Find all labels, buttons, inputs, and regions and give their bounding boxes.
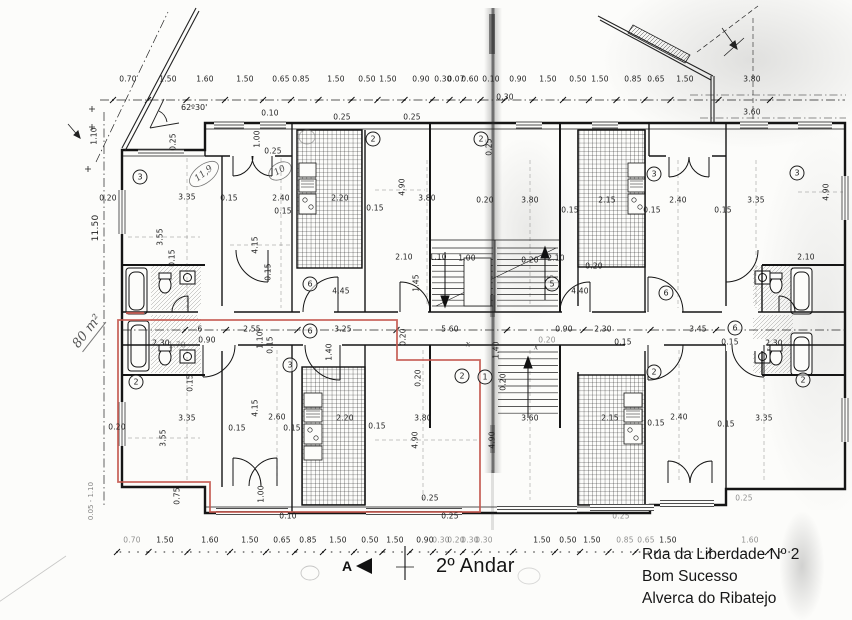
dimension-label: 0.15	[647, 419, 665, 428]
dimension-label: 0.10	[279, 512, 297, 521]
angle-annotation: 62º30'	[181, 103, 207, 112]
circled-room-number: 5	[545, 277, 560, 292]
dimension-label: 0.85	[292, 75, 310, 84]
dimension-label: 0.85	[624, 75, 642, 84]
dimension-label: 3.35	[178, 414, 196, 423]
floor-title: 2º Andar	[436, 555, 515, 578]
circled-room-number: 2	[796, 373, 811, 388]
dimension-label: 4.90	[822, 183, 831, 201]
dimension-label: 0.15	[714, 206, 732, 215]
dimension-label: 2.20	[336, 414, 354, 423]
dimension-label: 1.00	[458, 254, 476, 263]
dimension-label: 0.90	[416, 536, 434, 545]
dimension-label: 0.20	[521, 256, 539, 265]
dimension-label: 0.90	[555, 325, 573, 334]
dimension-label: 0.30	[496, 93, 514, 102]
dimension-label: 0.15	[561, 206, 579, 215]
dimension-label: 0.25	[612, 512, 630, 521]
dimension-label: 0.85	[299, 536, 317, 545]
dimension-label: 0.20	[399, 328, 408, 346]
dimension-label: 1.40	[492, 341, 501, 359]
dimension-label: 0.30	[475, 536, 493, 545]
dimension-label: 2.15	[601, 414, 619, 423]
dimension-label: 0.20	[99, 194, 117, 203]
dimension-label: 4.90	[411, 431, 420, 449]
circled-room-number: 6	[303, 324, 318, 339]
dimension-label: 3.80	[418, 194, 436, 203]
circled-room-number: 3	[283, 358, 298, 373]
dimension-label: 3.80	[414, 414, 432, 423]
circled-room-number: 6	[659, 286, 674, 301]
circled-room-number: 3	[133, 170, 148, 185]
dimension-label: 1.40	[325, 343, 334, 361]
dimension-label: 1.10	[90, 127, 99, 145]
dimension-label: 2.40	[670, 413, 688, 422]
dimension-label: 0.90	[509, 75, 527, 84]
dimension-label: 2.30	[594, 325, 612, 334]
dimension-label: 0.15	[220, 194, 238, 203]
circled-room-number: 2	[647, 365, 662, 380]
dimension-label: 1.50	[583, 536, 601, 545]
dimension-label: 0.20	[538, 336, 556, 345]
dimension-label: 0.15	[717, 420, 735, 429]
dimension-label: 0.15	[264, 263, 273, 281]
dimension-label: 0.15	[266, 336, 275, 354]
dimension-label: 4.45	[332, 287, 350, 296]
dimension-label: 3.35	[178, 193, 196, 202]
dimension-label: 0.50	[559, 536, 577, 545]
dimension-label: 6	[198, 325, 203, 334]
dimension-label: 3.35	[747, 196, 765, 205]
dimension-label: 3.55	[159, 429, 168, 447]
dimension-label: 0.50	[361, 536, 379, 545]
dimension-label: 1.60	[196, 75, 214, 84]
circled-room-number: 2	[129, 375, 144, 390]
handwritten-note: 10	[273, 164, 288, 178]
dimension-label: 0.50	[569, 75, 587, 84]
dimension-label: 0.10	[261, 109, 279, 118]
dimension-label: 2.40	[669, 196, 687, 205]
dimension-label: 1.70	[168, 341, 186, 350]
dimension-label: 1.10	[256, 331, 265, 349]
dimension-label: 1.00	[257, 485, 266, 503]
dimension-label: 1.45	[412, 274, 421, 292]
dimension-label: 0.15	[283, 424, 301, 433]
dimension-label: 0.20	[585, 262, 603, 271]
dimension-label: 0.90	[412, 75, 430, 84]
dimension-label: 1.50	[539, 75, 557, 84]
dimension-label: 3.25	[334, 325, 352, 334]
dimension-label: 3.45	[689, 325, 707, 334]
dimension-label: 3.55	[156, 228, 165, 246]
dimension-label: 5 60	[441, 325, 459, 334]
dimension-label: 0.25	[735, 494, 753, 503]
dimension-label: 0.20	[108, 423, 126, 432]
dimension-label: 2.40	[272, 194, 290, 203]
dimension-label: 1.50	[533, 536, 551, 545]
dimension-label: 3.60	[743, 108, 761, 117]
total-height-dimension: 11.50	[91, 215, 101, 242]
dimension-label: 4.15	[251, 236, 260, 254]
left-edge-dimension: 0.05 - 1.10	[87, 482, 95, 520]
dimension-label: 2.30	[765, 339, 783, 348]
dimension-label: 0.90	[198, 336, 216, 345]
dimension-label: 1.00	[253, 130, 262, 148]
dimension-label: 1.50	[329, 536, 347, 545]
address-line-3: Alverca do Ribatejo	[642, 588, 799, 610]
circled-room-number: 2	[366, 132, 381, 147]
dimension-label: 0.10	[482, 75, 500, 84]
dimension-labels-layer: 0.701.501.601.500.650.851.500.501.500.90…	[0, 0, 852, 620]
circled-room-number: 6	[303, 277, 318, 292]
dimension-label: 2.10	[547, 254, 565, 263]
dimension-label: 0.25	[421, 494, 439, 503]
dimension-label: 3.60	[521, 414, 539, 423]
dimension-label: 2.20	[331, 194, 349, 203]
dimension-label: 0.25	[441, 512, 459, 521]
dimension-label: 1.50	[327, 75, 345, 84]
dimension-label: 3.80	[743, 75, 761, 84]
dimension-label: 0.70	[123, 536, 141, 545]
dimension-label: 0.15	[274, 207, 292, 216]
dimension-label: 0.15	[614, 338, 632, 347]
dimension-label: 3.80	[521, 196, 539, 205]
dimension-label: 0.50	[358, 75, 376, 84]
dimension-label: 0.25	[403, 113, 421, 122]
handwritten-note: x	[534, 343, 539, 352]
dimension-label: 0.15	[228, 424, 246, 433]
dimension-label: 4.40	[571, 287, 589, 296]
dimension-label: 1.50	[591, 75, 609, 84]
address-line-1: Rua da Liberdade Nº 2	[642, 544, 799, 566]
circled-room-number: 6	[728, 321, 743, 336]
dimension-label: 0.20	[414, 369, 423, 387]
dimension-label: 0.15	[368, 422, 386, 431]
dimension-label: 0.15	[186, 374, 195, 392]
address-block: Rua da Liberdade Nº 2 Bom Sucesso Alverc…	[642, 544, 799, 610]
dimension-label: 1.50	[241, 536, 259, 545]
dimension-label: 0.85	[616, 536, 634, 545]
dimension-label: 1.50	[379, 75, 397, 84]
dimension-label: 1.50	[159, 75, 177, 84]
dimension-label: 0.60	[461, 75, 479, 84]
dimension-label: 2.10	[395, 253, 413, 262]
dimension-label: 1.10	[429, 253, 447, 262]
dimension-label: 3.35	[755, 414, 773, 423]
dimension-label: 0.15	[643, 206, 661, 215]
dimension-label: 0.70	[119, 75, 137, 84]
dimension-label: 0.15	[721, 338, 739, 347]
dimension-label: 1.60	[201, 536, 219, 545]
circled-room-number: 2	[455, 369, 470, 384]
address-line-2: Bom Sucesso	[642, 566, 799, 588]
dimension-label: 1.50	[676, 75, 694, 84]
dimension-label: 0.75	[173, 487, 182, 505]
dimension-label: 0.65	[273, 536, 291, 545]
dimension-label: 0.25	[169, 133, 178, 151]
dimension-label: 2.60	[268, 413, 286, 422]
section-letter: A	[342, 558, 352, 574]
dimension-label: 0.20	[476, 196, 494, 205]
dimension-label: 4.15	[251, 399, 260, 417]
dimension-label: 0.15	[366, 204, 384, 213]
circled-room-number: 3	[647, 167, 662, 182]
dimension-label: 0.65	[647, 75, 665, 84]
dimension-label: 1.50	[386, 536, 404, 545]
handwritten-note: x	[466, 340, 471, 349]
handwritten-note: 11,9	[193, 164, 215, 184]
circled-room-number: 3	[790, 166, 805, 181]
dimension-label: 2.30	[152, 339, 170, 348]
scanned-floor-plan-page: 0.701.501.601.500.650.851.500.501.500.90…	[0, 0, 852, 620]
dimension-label: 0.15	[168, 249, 177, 267]
dimension-label: 2.15	[598, 196, 616, 205]
dimension-label: 2.10	[797, 253, 815, 262]
dimension-label: 4.90	[488, 431, 497, 449]
dimension-label: 0.25	[333, 113, 351, 122]
dimension-label: 0.65	[272, 75, 290, 84]
dimension-label: 0.20	[499, 373, 508, 391]
dimension-label: 1.50	[156, 536, 174, 545]
dimension-label: 0.25	[264, 147, 282, 156]
circled-room-number: 1	[478, 370, 493, 385]
circled-room-number: 2	[474, 132, 489, 147]
dimension-label: 4.90	[398, 178, 407, 196]
dimension-label: 1.50	[236, 75, 254, 84]
